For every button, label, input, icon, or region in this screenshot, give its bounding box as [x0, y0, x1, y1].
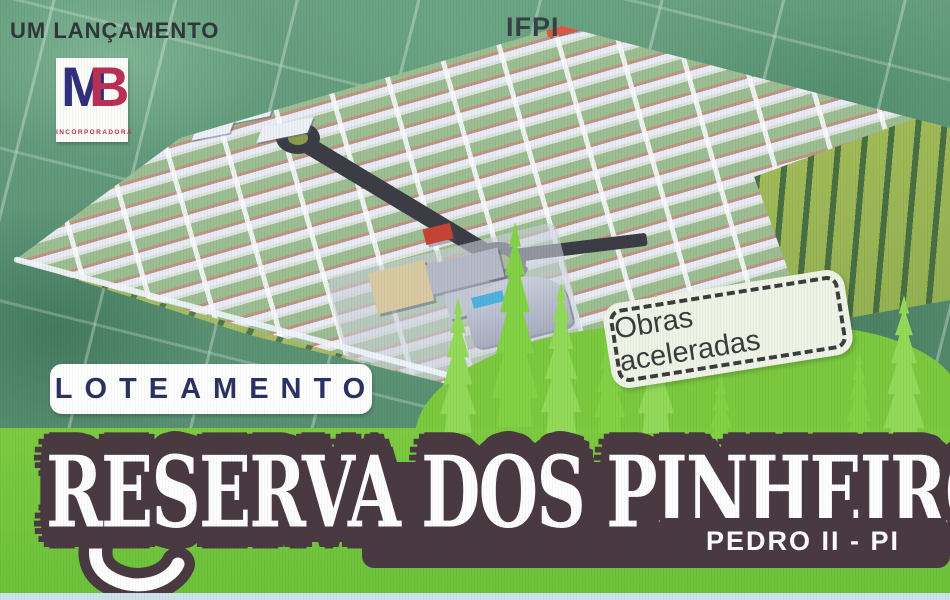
billboard-photo: Obras aceleradas LOTEAMENTO RESERVA DOS … — [0, 0, 950, 600]
mb-incorporadora-logo: M B INCORPORADORA — [56, 58, 128, 142]
location-band: PEDRO II - PI — [658, 518, 948, 564]
bottom-edge-line — [0, 593, 950, 600]
location-label: PEDRO II - PI — [706, 526, 900, 557]
category-label: LOTEAMENTO — [55, 373, 377, 406]
logo-subtitle: INCORPORADORA — [56, 129, 128, 136]
logo-letter-b: B — [89, 54, 129, 119]
ifpi-map-label: IFPI — [506, 12, 560, 43]
launch-tagline: UM LANÇAMENTO — [10, 18, 219, 44]
category-pill: LOTEAMENTO — [50, 364, 372, 414]
